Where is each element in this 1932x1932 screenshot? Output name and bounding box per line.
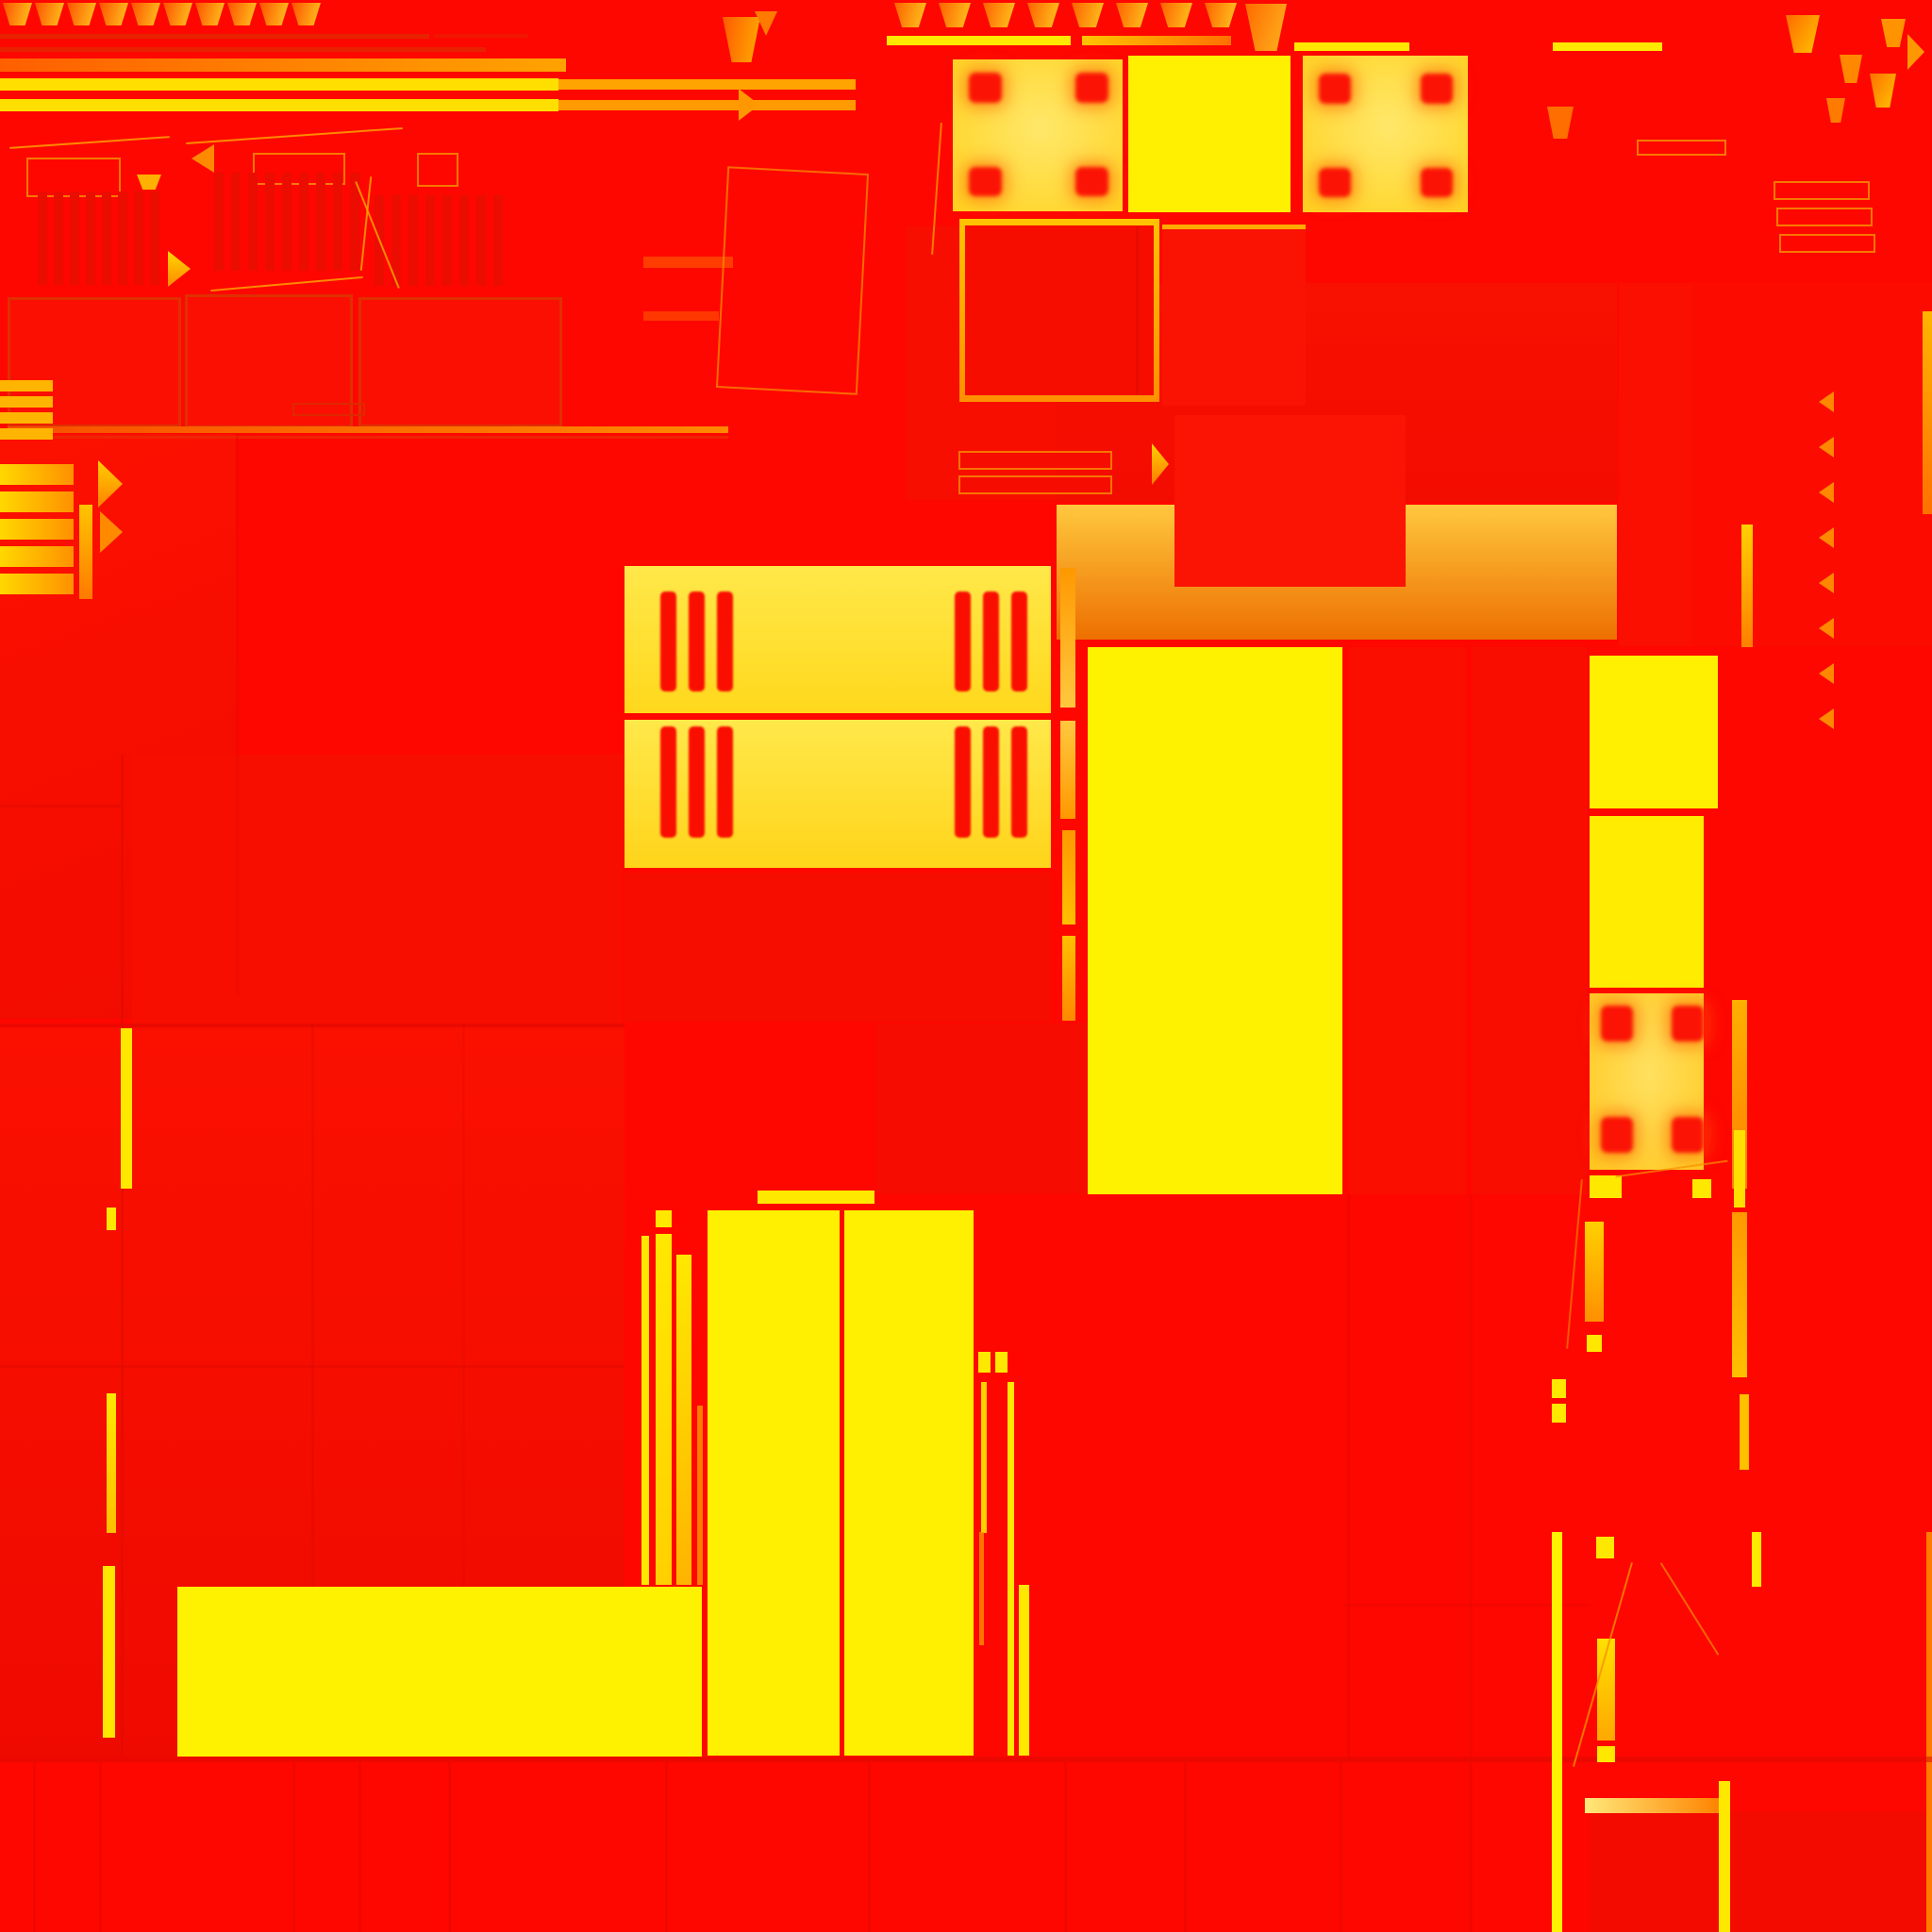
small-yellow-square bbox=[656, 1210, 672, 1227]
scatter-trapezoid bbox=[1881, 19, 1906, 47]
outline-box bbox=[417, 153, 458, 187]
texture-canvas bbox=[0, 0, 1932, 1932]
fence-slats bbox=[86, 192, 95, 285]
fence-slats bbox=[214, 173, 224, 271]
yellow-square bbox=[1128, 56, 1291, 212]
bordered-panel bbox=[8, 297, 181, 427]
trapezoid-row-left bbox=[67, 3, 96, 25]
seam-line bbox=[210, 276, 363, 291]
band-bars bbox=[717, 591, 733, 691]
panel-bottom-border bbox=[8, 426, 728, 433]
tonal-panel bbox=[1692, 283, 1932, 646]
edge-triangles bbox=[1819, 663, 1834, 684]
fence-slats bbox=[102, 192, 111, 285]
fence-wedge bbox=[137, 175, 161, 190]
band-bars bbox=[983, 591, 999, 691]
band-bars bbox=[1011, 591, 1027, 691]
trapezoid-row-mid bbox=[1072, 3, 1104, 27]
trapezoid-row-left bbox=[131, 3, 160, 25]
panel-seam bbox=[1136, 226, 1139, 394]
seam-line bbox=[360, 176, 372, 271]
bottom-yellow-column bbox=[708, 1210, 840, 1756]
left-bar-stack-upper bbox=[0, 412, 53, 424]
small-yellow-square bbox=[1590, 1175, 1622, 1198]
edge-strip bbox=[1732, 1212, 1747, 1377]
small-yellow-square bbox=[1597, 1746, 1615, 1762]
left-stack-strip bbox=[79, 505, 92, 599]
edge-strip bbox=[1740, 1394, 1749, 1470]
trapezoid-row-left bbox=[259, 3, 289, 25]
equals-bar bbox=[958, 451, 1112, 470]
bordered-panel bbox=[358, 297, 562, 427]
big-yellow-rect bbox=[177, 1587, 702, 1757]
left-bar-stack bbox=[0, 491, 74, 512]
dice-dot bbox=[969, 73, 1002, 103]
left-bar-stack bbox=[0, 519, 74, 540]
trapezoid-row-mid bbox=[1160, 3, 1192, 27]
outline-bar bbox=[1637, 140, 1726, 156]
scatter-trapezoid bbox=[1870, 74, 1896, 108]
thin-yellow-stripe bbox=[107, 1393, 116, 1533]
scatter-trapezoid bbox=[1547, 107, 1574, 139]
yellow-stripe bbox=[1719, 1781, 1730, 1932]
seam bbox=[1470, 1194, 1473, 1757]
small-yellow-square bbox=[995, 1352, 1008, 1373]
seam bbox=[358, 1762, 361, 1932]
small-yellow-square bbox=[1552, 1379, 1566, 1398]
orange-strip bbox=[1062, 830, 1075, 924]
dice-dot bbox=[1075, 167, 1108, 196]
trapezoid-row-left bbox=[195, 3, 225, 25]
dice-dot bbox=[1601, 1006, 1633, 1041]
thin-stripe-group bbox=[641, 1236, 649, 1585]
dice-dot bbox=[1421, 168, 1453, 197]
tonal-panel bbox=[1590, 1811, 1932, 1932]
seam bbox=[33, 1762, 36, 1932]
dice-dot bbox=[969, 167, 1002, 196]
scatter-triangle bbox=[1907, 34, 1924, 70]
band-bars bbox=[689, 726, 705, 838]
dice-dot bbox=[1672, 1117, 1704, 1153]
left-bar-stack bbox=[0, 464, 74, 485]
band-bars bbox=[660, 726, 676, 838]
thin-yellow-stripe bbox=[107, 1207, 116, 1230]
tonal-panel bbox=[132, 755, 623, 1028]
thin-stripe-group bbox=[1008, 1382, 1014, 1756]
fence-slats bbox=[150, 192, 159, 285]
seam-line bbox=[9, 136, 170, 149]
band-bars bbox=[717, 726, 733, 838]
dice-dot bbox=[1075, 73, 1108, 103]
thin-stripe-orange bbox=[979, 1532, 984, 1645]
scatter-trapezoid bbox=[1826, 98, 1845, 123]
trapezoid-row-left bbox=[163, 3, 192, 25]
thin-stripe-group bbox=[981, 1382, 987, 1533]
fence-slats bbox=[408, 195, 418, 286]
fence-slats bbox=[299, 173, 308, 271]
fence-slats bbox=[316, 173, 325, 271]
fence-slats bbox=[459, 195, 469, 286]
red-block-top-edge bbox=[1162, 225, 1306, 229]
bright-stripe bbox=[1552, 1532, 1562, 1932]
fence-wedge bbox=[192, 144, 214, 173]
stripe-dark bbox=[434, 34, 528, 38]
fence-slats bbox=[442, 195, 452, 286]
small-yellow-square bbox=[1596, 1537, 1614, 1558]
trapezoid-row-mid bbox=[1116, 3, 1148, 27]
orange-strip bbox=[1062, 936, 1075, 1021]
orange-strip bbox=[1060, 568, 1075, 708]
thin-stripe-group bbox=[1019, 1585, 1029, 1756]
below-band-block bbox=[625, 873, 1051, 1022]
fence-slats bbox=[265, 173, 275, 271]
band-bars bbox=[1011, 726, 1027, 838]
stripe-dark bbox=[0, 47, 486, 52]
fence-slats bbox=[333, 173, 342, 271]
wedge bbox=[739, 89, 759, 121]
trapezoid-row-mid bbox=[939, 3, 971, 27]
yellow-vbar bbox=[1585, 1222, 1604, 1322]
edge-strip bbox=[1923, 311, 1932, 514]
faint-bar bbox=[643, 257, 733, 268]
trapezoid-row-left bbox=[99, 3, 128, 25]
small-yellow-square bbox=[1587, 1335, 1602, 1352]
seam bbox=[1340, 1762, 1342, 1932]
trapezoid-row-mid bbox=[983, 3, 1015, 27]
panel-bottom-border-faint bbox=[8, 436, 728, 439]
trapezoid-row-mid bbox=[894, 3, 926, 27]
trapezoid-row-left bbox=[35, 3, 64, 25]
seam bbox=[1064, 1762, 1067, 1932]
seam bbox=[292, 1762, 295, 1932]
left-bar-stack-upper bbox=[0, 428, 53, 440]
tall-yellow-column bbox=[1088, 647, 1342, 1194]
dice-top-bar bbox=[887, 36, 1071, 45]
edge-strip bbox=[1926, 1532, 1932, 1932]
dice-dot bbox=[1319, 168, 1351, 197]
fence-slats bbox=[38, 192, 47, 285]
dice-top-bar bbox=[1553, 42, 1662, 51]
edge-strip bbox=[1741, 525, 1753, 647]
seam bbox=[665, 1762, 668, 1932]
seam bbox=[0, 805, 121, 808]
seam bbox=[448, 1762, 451, 1932]
seam bbox=[0, 1757, 1932, 1762]
band-bars bbox=[955, 591, 971, 691]
edge-triangles bbox=[1819, 708, 1834, 729]
dice-dot bbox=[1319, 74, 1351, 104]
outline-line bbox=[1566, 1179, 1583, 1348]
seam bbox=[1347, 1194, 1350, 1757]
pentagon-outline bbox=[716, 166, 869, 395]
fence-slats bbox=[493, 195, 503, 286]
seam bbox=[868, 1762, 871, 1932]
thin-stripe-orange bbox=[697, 1406, 703, 1585]
dice-dot bbox=[1672, 1006, 1704, 1041]
right-red-column bbox=[1619, 283, 1692, 646]
dice-dot bbox=[1421, 74, 1453, 104]
seam-line bbox=[186, 127, 403, 144]
fence-slats bbox=[231, 173, 241, 271]
scatter-trapezoid bbox=[1786, 15, 1820, 53]
thin-stripe-group bbox=[656, 1234, 672, 1585]
trapezoid-end bbox=[1245, 4, 1287, 51]
stripe-yellow bbox=[0, 99, 558, 111]
trapezoid-row-mid bbox=[1205, 3, 1237, 27]
tall-red-column bbox=[1349, 647, 1466, 1194]
trapezoid-row-left bbox=[291, 3, 321, 25]
small-yellow-square bbox=[1552, 1404, 1566, 1423]
seam bbox=[121, 755, 124, 1757]
gradient-hbar bbox=[1585, 1798, 1719, 1813]
yellow-bar bbox=[758, 1191, 874, 1204]
fence-slats bbox=[118, 192, 127, 285]
orange-strip bbox=[1060, 721, 1075, 819]
red-block bbox=[1162, 225, 1306, 406]
bordered-panel-inner bbox=[965, 225, 1154, 395]
thin-yellow-stripe bbox=[121, 1028, 132, 1189]
thin-yellow-stripe bbox=[103, 1566, 115, 1738]
fence-slats bbox=[248, 173, 258, 271]
stripe-yellow-faint bbox=[558, 100, 856, 110]
tall-red-column bbox=[1472, 647, 1587, 1194]
small-yellow-square bbox=[1692, 1179, 1711, 1198]
left-bar-stack bbox=[0, 574, 74, 594]
trapezoid-orphan bbox=[723, 17, 760, 62]
seam bbox=[236, 434, 239, 995]
stripe-orange bbox=[0, 58, 566, 72]
outline-line bbox=[1660, 1562, 1720, 1656]
band-bars bbox=[660, 591, 676, 691]
equals-bar bbox=[958, 475, 1112, 494]
inner-outline bbox=[292, 403, 365, 416]
left-bar-stack-upper bbox=[0, 396, 53, 408]
edge-strip bbox=[1734, 1130, 1745, 1207]
outline-bar bbox=[1776, 208, 1873, 226]
fence-slats bbox=[54, 192, 63, 285]
left-bar-stack bbox=[0, 546, 74, 567]
bottom-yellow-column bbox=[844, 1210, 974, 1756]
left-bar-stack-upper bbox=[0, 380, 53, 391]
dice-dot bbox=[1601, 1117, 1633, 1153]
outline-bar bbox=[1779, 234, 1875, 253]
fence-slats bbox=[282, 173, 291, 271]
trapezoid-row-mid bbox=[1027, 3, 1059, 27]
dice-top-bar bbox=[1294, 42, 1409, 51]
band-bars bbox=[955, 726, 971, 838]
red-block bbox=[1174, 415, 1406, 587]
fence-slats bbox=[134, 192, 143, 285]
thin-stripe-group bbox=[676, 1255, 691, 1585]
fence-slats bbox=[425, 195, 435, 286]
stripe-yellow bbox=[0, 78, 558, 91]
yellow-stack-block bbox=[1590, 816, 1704, 988]
fence-slats bbox=[476, 195, 486, 286]
seam bbox=[1184, 1762, 1187, 1932]
yellow-stack-block bbox=[1590, 656, 1718, 808]
scatter-trapezoid bbox=[1840, 55, 1862, 83]
stripe-yellow-faint bbox=[558, 79, 856, 90]
small-yellow-square bbox=[978, 1352, 991, 1373]
dice-top-bar-orange bbox=[1082, 36, 1231, 45]
trapezoid-row-left bbox=[227, 3, 257, 25]
stripe-dark bbox=[0, 34, 429, 39]
band-bars bbox=[983, 726, 999, 838]
trapezoid-row-left bbox=[3, 3, 32, 25]
fence-wedge bbox=[168, 251, 191, 287]
small-yellow-square bbox=[1752, 1532, 1761, 1587]
seam bbox=[1470, 1762, 1473, 1932]
band-bars bbox=[689, 591, 705, 691]
faint-bar bbox=[643, 311, 719, 321]
fence-slats bbox=[70, 192, 79, 285]
seam bbox=[99, 1762, 102, 1932]
outline-bar bbox=[1774, 181, 1870, 200]
